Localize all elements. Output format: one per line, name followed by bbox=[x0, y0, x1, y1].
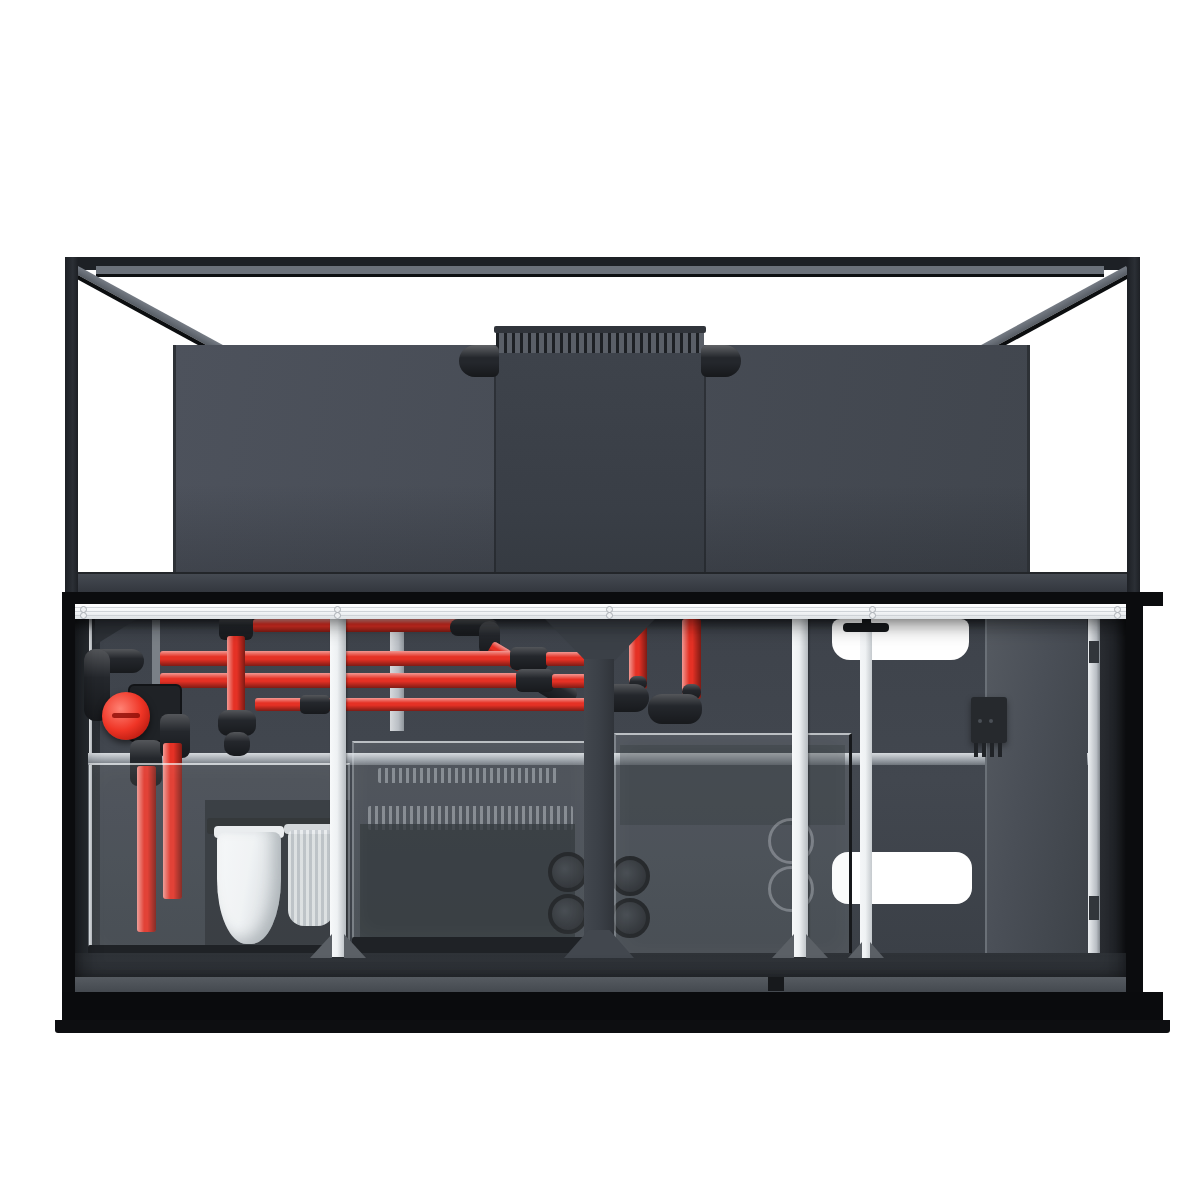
overflow-elbow-left bbox=[459, 345, 499, 377]
rail-screw bbox=[869, 612, 876, 619]
cabinet-frame-right bbox=[1126, 592, 1143, 992]
cabinet-top-rail bbox=[75, 604, 1126, 619]
overflow-lip bbox=[494, 326, 706, 333]
tank-panel-edge-right bbox=[1027, 345, 1030, 577]
overflow-body bbox=[494, 353, 706, 577]
base-latch bbox=[768, 977, 784, 991]
tank-frame-left bbox=[65, 257, 78, 593]
overflow-comb bbox=[496, 333, 704, 353]
overflow-elbow-right bbox=[701, 345, 741, 377]
tank-frame-right bbox=[1127, 257, 1140, 593]
base-plinth bbox=[62, 992, 1163, 1022]
rail-screw bbox=[80, 612, 87, 619]
product-image bbox=[0, 0, 1200, 1200]
rail-screw bbox=[334, 612, 341, 619]
rail-screw bbox=[606, 612, 613, 619]
overflow-box bbox=[494, 326, 706, 577]
cabinet-base-bar bbox=[70, 977, 1130, 993]
rail-screw bbox=[1114, 612, 1121, 619]
tank-bottom-bar bbox=[78, 572, 1127, 592]
interior-vignette bbox=[75, 619, 1126, 977]
tank-panel-edge-left bbox=[173, 345, 176, 577]
cabinet-frame-left bbox=[62, 592, 75, 992]
tank-back-rim bbox=[96, 266, 1104, 277]
base-plinth-lip bbox=[55, 1020, 1170, 1033]
